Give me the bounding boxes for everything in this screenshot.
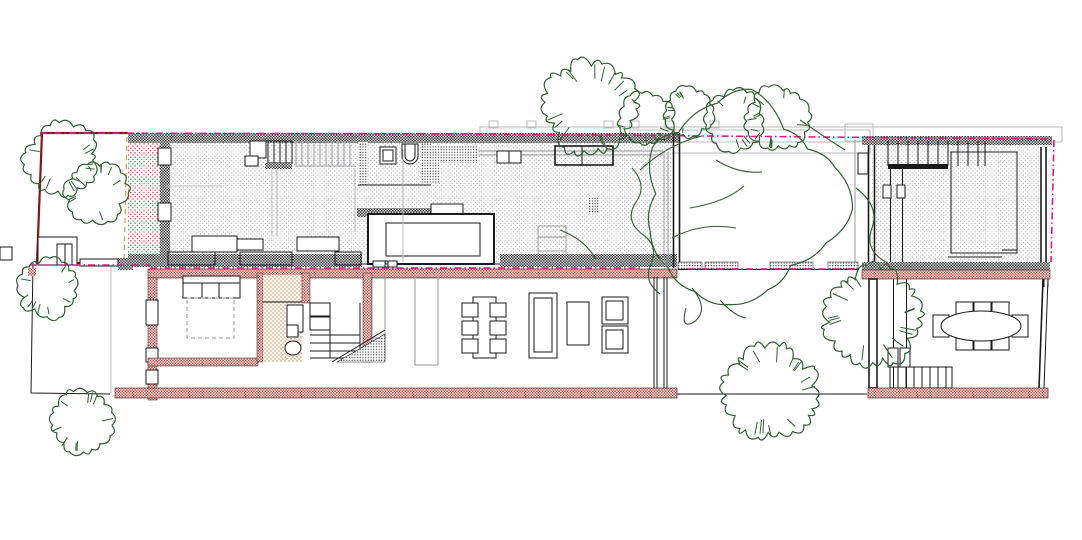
tree-side-garden — [17, 257, 78, 321]
bed — [183, 276, 240, 338]
tree-canopy-ticks — [748, 90, 807, 148]
gf-stair — [310, 273, 385, 362]
tree-north-row-4 — [704, 88, 764, 154]
floor-plan-drawing — [0, 0, 1082, 540]
tree-canopy-outline — [17, 257, 78, 321]
tree-canopy-outline — [21, 120, 97, 197]
oval-table — [941, 311, 1021, 341]
terrace-deck — [128, 136, 162, 262]
rear-north-wall — [862, 136, 1052, 145]
dining-chair — [462, 303, 478, 317]
rear-garden-outline — [31, 263, 111, 394]
sofa — [529, 293, 557, 358]
rear-stair-down — [888, 348, 952, 388]
armchair — [602, 297, 628, 324]
kitchen-sink — [497, 151, 509, 163]
tree-courtyard-south — [720, 342, 819, 440]
tree-canopy-ticks — [738, 347, 815, 435]
gf-pier — [415, 277, 438, 365]
neighbour-wall-stub — [0, 247, 12, 260]
gf-north-wall-rear — [862, 270, 1050, 279]
desk-1 — [192, 236, 237, 252]
dining-chair — [462, 321, 478, 335]
glazed-wall-courtyard — [654, 277, 667, 390]
wall-stub-left — [28, 268, 36, 276]
dining-chair — [462, 339, 478, 353]
dense-pier — [588, 198, 600, 214]
tree-canopy-outline — [704, 88, 764, 154]
dining-chair — [490, 303, 506, 317]
bedroom — [148, 273, 263, 366]
tree-front-garden-1 — [21, 120, 97, 197]
wc-bowl — [285, 341, 301, 355]
dining-chair — [490, 339, 506, 353]
oval-table-group — [933, 302, 1028, 350]
rear-dining-room — [868, 279, 1048, 398]
living-dining — [462, 293, 628, 358]
coffee-table — [567, 302, 589, 345]
rear-west-wall — [869, 279, 877, 388]
floor-plan-canvas — [0, 0, 1082, 540]
gf-south-wall — [115, 388, 677, 398]
tree-canopy-outline — [720, 342, 819, 440]
rear-door-leaf — [858, 153, 868, 174]
gf-west-wall — [146, 278, 158, 400]
tree-canopy-outline — [49, 388, 115, 455]
gf-bathroom — [263, 273, 310, 362]
garden-shed — [38, 237, 77, 265]
desk-2 — [297, 237, 339, 251]
rear-room-floor — [872, 145, 1040, 262]
armchair — [602, 326, 628, 353]
dining-chair — [490, 321, 506, 335]
tree-rear-garden-left — [49, 388, 115, 455]
